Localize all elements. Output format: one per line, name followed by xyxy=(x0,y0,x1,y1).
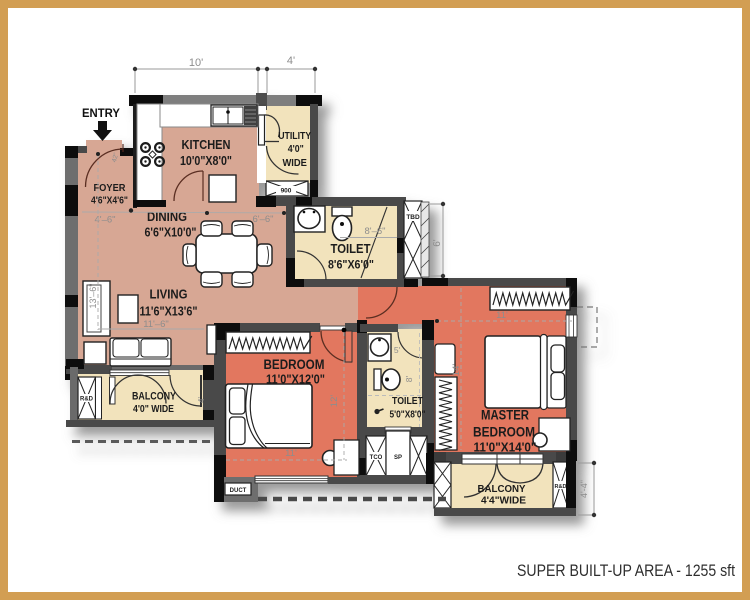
svg-text:6'6"X10'0": 6'6"X10'0" xyxy=(145,226,197,240)
svg-text:KITCHEN: KITCHEN xyxy=(182,137,231,152)
svg-text:TOILET: TOILET xyxy=(392,395,423,407)
svg-text:10': 10' xyxy=(189,57,203,69)
svg-text:WIDE: WIDE xyxy=(282,158,307,169)
svg-text:BEDROOM: BEDROOM xyxy=(264,357,325,372)
svg-text:DUCT: DUCT xyxy=(230,488,247,494)
svg-text:4'6"X4'6": 4'6"X4'6" xyxy=(91,196,128,207)
svg-text:ENTRY: ENTRY xyxy=(82,108,120,120)
svg-text:4'-4": 4'-4" xyxy=(579,480,589,498)
svg-text:TCO: TCO xyxy=(370,455,383,461)
svg-text:5'0"X8'0": 5'0"X8'0" xyxy=(390,410,426,421)
svg-text:8': 8' xyxy=(404,375,414,382)
svg-text:11': 11' xyxy=(285,448,297,459)
svg-text:4': 4' xyxy=(197,397,206,403)
svg-text:8'6"X6'0": 8'6"X6'0" xyxy=(328,258,374,272)
svg-text:14': 14' xyxy=(451,364,462,377)
svg-text:LIVING: LIVING xyxy=(150,287,188,302)
svg-text:4'4"WIDE: 4'4"WIDE xyxy=(481,496,526,507)
svg-text:TBD: TBD xyxy=(406,214,420,221)
svg-text:DINING: DINING xyxy=(147,209,187,224)
svg-text:R&D: R&D xyxy=(555,484,567,490)
svg-text:900: 900 xyxy=(281,188,292,195)
svg-text:5': 5' xyxy=(394,345,401,355)
svg-text:11': 11' xyxy=(496,310,508,321)
svg-text:4'0" WIDE: 4'0" WIDE xyxy=(133,403,174,415)
svg-text:10'0"X8'0": 10'0"X8'0" xyxy=(180,154,232,168)
svg-text:TOILET: TOILET xyxy=(331,241,371,256)
svg-text:SP: SP xyxy=(394,455,402,461)
svg-text:BALCONY: BALCONY xyxy=(132,391,177,403)
svg-text:12': 12' xyxy=(329,395,340,408)
svg-text:BEDROOM: BEDROOM xyxy=(473,425,535,440)
svg-text:SUPER BUILT-UP AREA - 1255 sft: SUPER BUILT-UP AREA - 1255 sft xyxy=(517,562,735,580)
svg-text:8'–6": 8'–6" xyxy=(364,226,385,237)
svg-text:13'–6": 13'–6" xyxy=(88,284,98,309)
svg-text:UTILITY: UTILITY xyxy=(278,131,311,142)
svg-text:6'–6": 6'–6" xyxy=(252,214,273,225)
svg-text:6': 6' xyxy=(432,239,443,247)
svg-text:BALCONY: BALCONY xyxy=(478,483,526,495)
svg-text:4'0": 4'0" xyxy=(288,144,304,155)
svg-text:R&D: R&D xyxy=(80,397,94,403)
svg-text:11'0"X12'0": 11'0"X12'0" xyxy=(266,373,325,387)
svg-text:11'–6": 11'–6" xyxy=(143,319,169,330)
svg-text:11'0"X14'0": 11'0"X14'0" xyxy=(474,441,537,455)
svg-text:4': 4' xyxy=(287,55,295,67)
svg-text:11'6"X13'6": 11'6"X13'6" xyxy=(140,305,198,319)
svg-text:MASTER: MASTER xyxy=(481,408,529,423)
